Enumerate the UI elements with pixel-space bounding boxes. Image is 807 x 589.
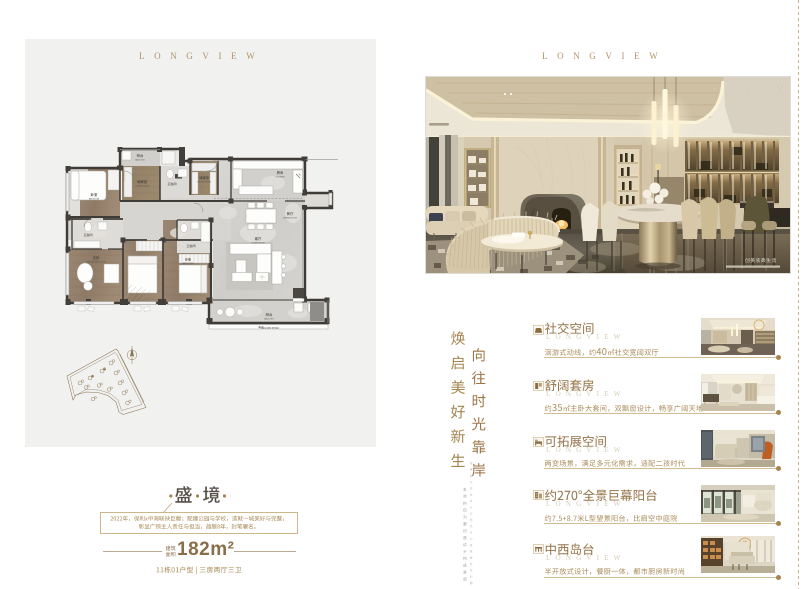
svg-text:MASTER BEDROOM: MASTER BEDROOM — [86, 261, 106, 264]
svg-text:BEDROOM: BEDROOM — [89, 199, 100, 201]
svg-text:DINING ROOM: DINING ROOM — [283, 218, 297, 220]
svg-text:BALCONY: BALCONY — [135, 159, 145, 162]
svg-text:BEDROOM: BEDROOM — [183, 263, 194, 265]
svg-text:COLORS POND: COLORS POND — [261, 327, 279, 330]
svg-text:STORE ROOM: STORE ROOM — [197, 182, 211, 184]
svg-text:KITCHEN: KITCHEN — [276, 177, 285, 179]
svg-text:LIVING ROOM: LIVING ROOM — [251, 243, 265, 245]
svg-text:STORE ROOM: STORE ROOM — [135, 186, 149, 188]
svg-text:BALCONY: BALCONY — [264, 318, 274, 321]
